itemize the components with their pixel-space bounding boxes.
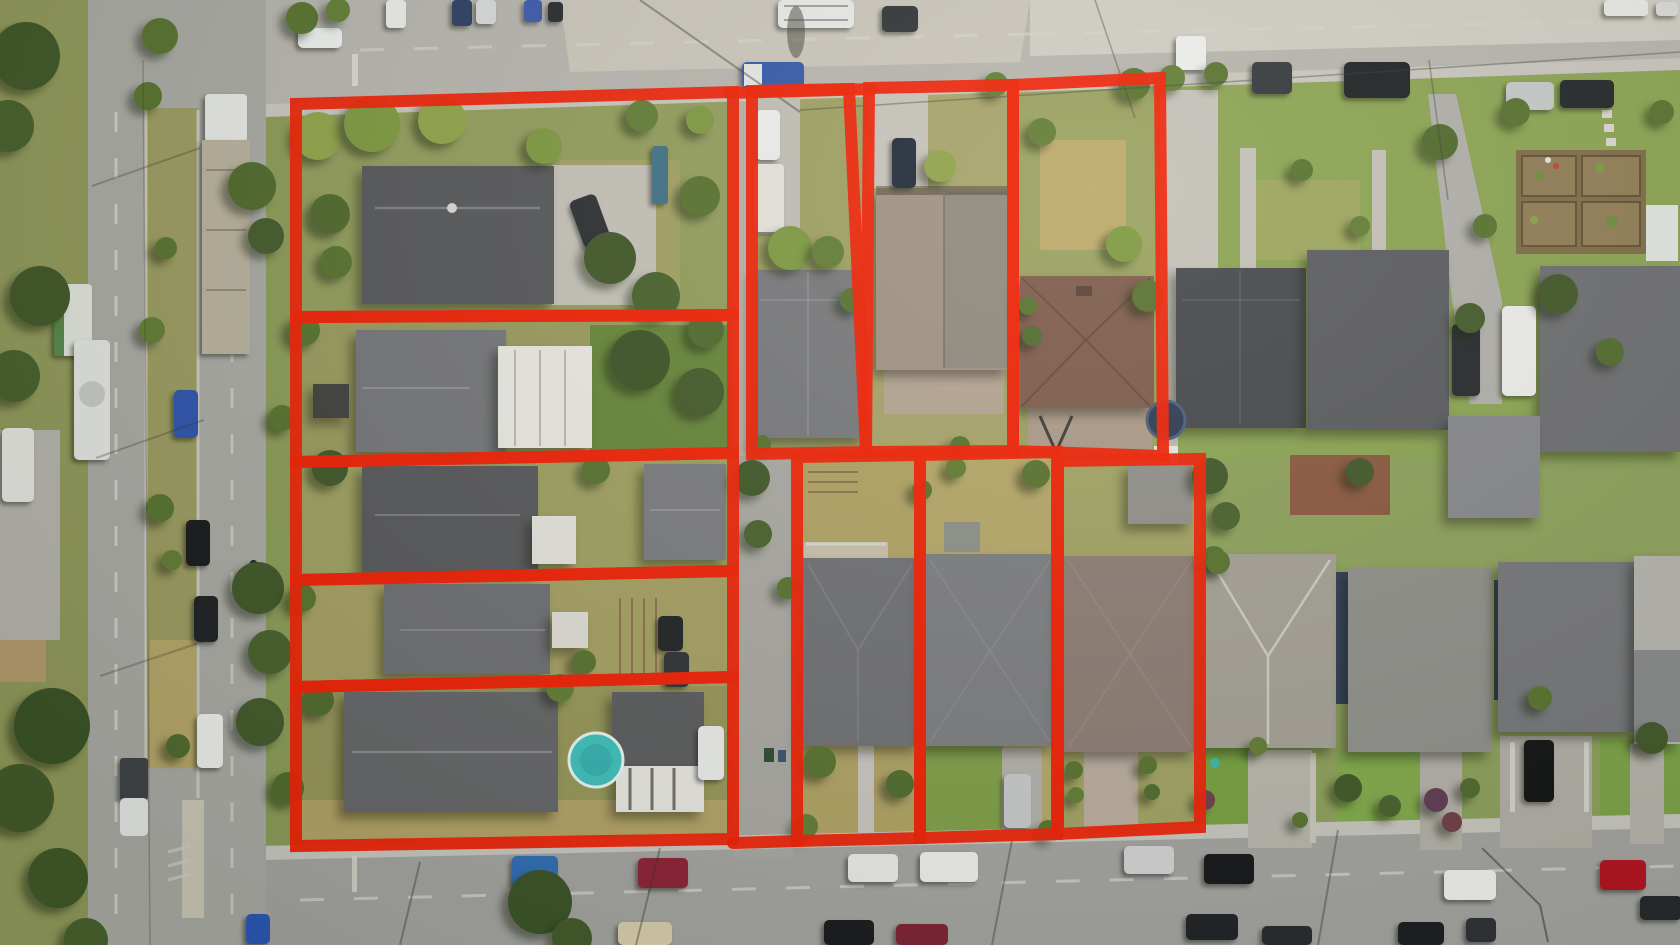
parked-blue-car-top-2 <box>524 0 542 22</box>
mid-row-house <box>1448 416 1540 518</box>
white-box-truck <box>1176 36 1206 70</box>
black-sedan-arterial-2 <box>194 596 218 642</box>
parcel-segment-top-line-patch <box>730 89 872 93</box>
median-bush <box>162 550 182 570</box>
ne-long-driveway <box>1160 90 1218 268</box>
tree <box>248 218 284 254</box>
semi-truck-cab <box>205 94 247 142</box>
lot10-front-lawn <box>926 744 1004 836</box>
lot4-dark-car-1 <box>658 616 683 651</box>
tree <box>1502 98 1530 126</box>
hedge <box>1139 756 1157 774</box>
bush <box>1350 216 1370 236</box>
se-black-suv <box>1524 740 1554 802</box>
tree <box>28 848 88 908</box>
dark-suv-top-street <box>882 6 918 32</box>
tree <box>1528 686 1552 710</box>
bush <box>946 458 966 478</box>
bush <box>1022 326 1042 346</box>
silver-car-bottom-street <box>1124 846 1174 874</box>
pool-inner <box>580 744 612 776</box>
tree <box>1346 458 1374 486</box>
tree <box>10 266 70 326</box>
pickup-bed-arterial <box>120 758 148 800</box>
stepping-stone <box>1604 124 1614 132</box>
white-car-top-corner <box>1604 0 1648 16</box>
tree <box>142 18 178 54</box>
tree <box>686 106 714 134</box>
pole-shadow-blob <box>787 6 805 58</box>
tree <box>228 162 276 210</box>
stepping-stone <box>1602 110 1612 118</box>
white-car-bottom-street-1 <box>848 854 898 882</box>
tree <box>1212 502 1240 530</box>
median-refuge-island <box>182 800 204 918</box>
greenhouse <box>1646 205 1678 261</box>
bottom-street-stub-line <box>352 856 357 892</box>
tree <box>1334 774 1362 802</box>
tree <box>812 236 844 268</box>
aerial-photo <box>0 0 1680 945</box>
white-car-arterial <box>197 714 223 768</box>
bush <box>1473 214 1497 238</box>
tree <box>680 176 720 216</box>
garden-white-dot <box>1545 157 1551 163</box>
tree <box>768 226 812 270</box>
red-shrub <box>1442 812 1462 832</box>
tan-car-south-row <box>618 922 672 945</box>
se-house-2-navy-wall <box>1336 572 1350 704</box>
tree <box>584 232 636 284</box>
parked-dark-car-top <box>548 2 563 22</box>
lot4-canopy <box>552 612 588 648</box>
tree <box>1650 100 1674 124</box>
tree <box>310 194 350 234</box>
tree <box>320 246 352 278</box>
black-van-bottom-street <box>1204 854 1254 884</box>
dark-car-south-row-5 <box>1466 918 1496 942</box>
maroon-car-south-row <box>896 924 948 945</box>
tree <box>1028 118 1056 146</box>
ne-house-2 <box>1307 250 1449 430</box>
tree <box>744 520 772 548</box>
tree <box>232 562 284 614</box>
stepping-stone <box>1606 138 1616 146</box>
garden-plant <box>1606 216 1618 228</box>
lot2-sunroom <box>498 346 592 448</box>
tree <box>924 150 956 182</box>
tree <box>676 368 724 416</box>
bush <box>1292 812 1308 828</box>
lot6-white-rv <box>754 164 784 232</box>
lot7-patio <box>884 370 1004 414</box>
garden-plant <box>1530 216 1538 224</box>
black-car-south-row-1 <box>824 920 874 945</box>
mixer-drum <box>79 381 105 407</box>
pickup-cab-arterial <box>120 798 148 836</box>
top-street-stop-bar <box>352 54 358 86</box>
tree <box>248 630 292 674</box>
parked-white-van-top <box>386 0 406 28</box>
median-bush <box>166 734 190 758</box>
se-arbor-rail <box>1310 753 1316 843</box>
teal-yard-ball <box>1210 758 1220 768</box>
lot7-dark-car <box>892 138 916 188</box>
trash-bin <box>778 750 786 762</box>
bush <box>1460 778 1480 798</box>
parked-blue-car-top <box>452 0 472 26</box>
garden-plant <box>1535 171 1545 181</box>
ne-dry-patch <box>1240 180 1360 260</box>
se-house-3 <box>1498 562 1634 732</box>
tree <box>14 688 90 764</box>
lot1-chimney <box>447 203 457 213</box>
se-driveway-1 <box>1248 750 1312 848</box>
west-fence-yard <box>0 640 46 682</box>
lot5-rear-house <box>612 692 704 766</box>
tree <box>804 746 836 778</box>
garden-plant <box>1595 163 1605 173</box>
se-stair-rail <box>1584 742 1589 812</box>
ne-front-walk-1 <box>1240 148 1256 270</box>
dark-car-south-row-6 <box>1640 896 1680 920</box>
lot6-white-car <box>756 110 780 160</box>
white-car-bottom-street-2 <box>920 852 978 882</box>
tree <box>572 650 596 674</box>
maroon-car-bottom-street <box>638 858 688 888</box>
tree <box>1538 274 1578 314</box>
red-car-bottom-street <box>1600 860 1646 890</box>
aerial-scene-svg <box>0 0 1680 945</box>
shared-lane <box>733 456 793 858</box>
lot3-house <box>362 466 538 572</box>
lot1-blue-trailer <box>652 146 668 204</box>
tree <box>1206 550 1230 574</box>
bush <box>1019 297 1037 315</box>
red-court-patch <box>1290 455 1390 515</box>
dark-car-south-row-4 <box>1398 922 1444 945</box>
dark-car-south-row-3 <box>1262 926 1312 945</box>
tree <box>134 82 162 110</box>
tree <box>1022 460 1050 488</box>
se-driveway-4 <box>1630 744 1664 844</box>
black-sedan-arterial-1 <box>186 520 210 566</box>
purple-shrub <box>1424 788 1448 812</box>
lot3-garage <box>644 464 726 560</box>
blue-car-bottom-left <box>246 914 270 944</box>
lot11-driveway <box>1084 750 1138 834</box>
parked-white-car-top <box>476 0 496 24</box>
garden-bed <box>1582 156 1640 196</box>
tree <box>236 698 284 746</box>
garden-bed <box>1522 202 1576 246</box>
lot2-house <box>356 330 506 452</box>
lot7-house-right-facet <box>944 192 1008 368</box>
lot10-shed <box>944 522 980 552</box>
lot11-garage <box>1128 464 1192 524</box>
lot10-silver-car <box>1004 774 1031 828</box>
median-bush <box>146 494 174 522</box>
lot1-house <box>362 166 554 304</box>
tree <box>1596 338 1624 366</box>
lot8-chimney <box>1076 286 1092 296</box>
lot9-house <box>802 558 920 746</box>
ne-white-rv <box>1502 306 1536 396</box>
ne-black-suv <box>1452 324 1480 396</box>
bush <box>1291 159 1313 181</box>
blue-sedan-arterial <box>174 390 198 438</box>
tree <box>626 100 658 132</box>
white-car-top-corner-2 <box>1656 2 1678 16</box>
se-stair-rail <box>1510 742 1515 812</box>
tree <box>734 460 770 496</box>
lot2-conifer <box>610 330 670 390</box>
parcel-segment-lane-crossing-bottom <box>733 841 799 843</box>
garden-red-flag <box>1553 163 1559 169</box>
hedge <box>1068 787 1084 803</box>
tree <box>1636 722 1668 754</box>
black-suv-top-street <box>1344 62 1410 98</box>
tree <box>526 128 562 164</box>
tree <box>886 770 914 798</box>
white-sedan-bottom-street <box>1444 870 1496 900</box>
lot9-front-path <box>858 746 874 838</box>
lot5-white-car <box>698 726 724 780</box>
bush <box>1249 737 1267 755</box>
hedge <box>1065 761 1083 779</box>
median-bush <box>155 237 177 259</box>
tree <box>1106 226 1142 262</box>
white-rv-west <box>2 428 34 502</box>
median-bush <box>139 317 165 343</box>
lot3-porch <box>532 516 576 564</box>
tree <box>1455 303 1485 333</box>
lot2-shed <box>313 384 349 418</box>
hedge <box>1144 784 1160 800</box>
se-house-2 <box>1348 568 1492 752</box>
ne-front-walk-2 <box>1372 150 1386 252</box>
trash-bin <box>764 748 774 762</box>
tree <box>1379 795 1401 817</box>
black-car-top-street <box>1560 80 1614 108</box>
dark-car-south-row-2 <box>1186 914 1238 940</box>
corner-bush <box>286 2 318 34</box>
